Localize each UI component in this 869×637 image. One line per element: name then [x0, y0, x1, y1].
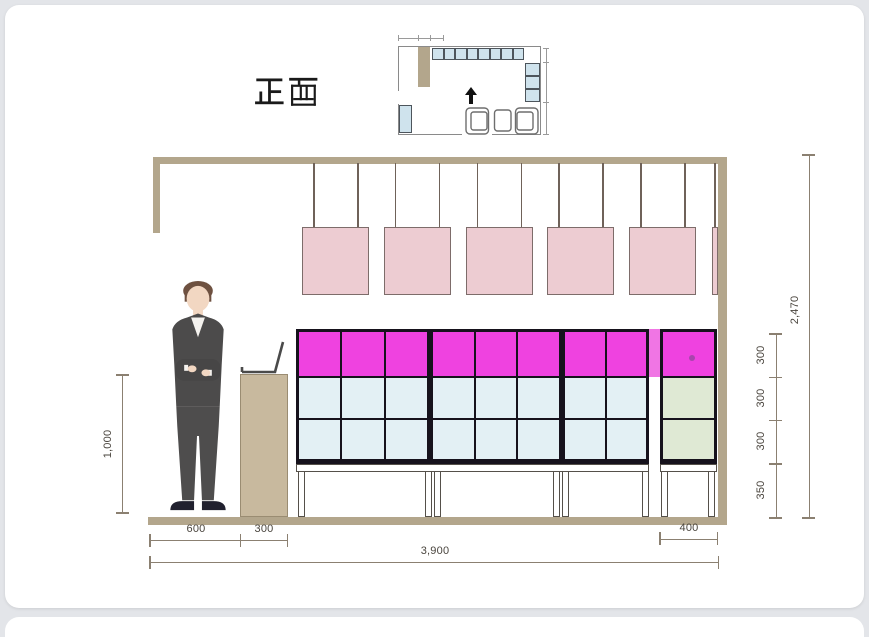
- shelf-cell-blue: [475, 377, 518, 419]
- plan-shelf-module: [525, 89, 540, 102]
- pendant-light: [466, 227, 533, 295]
- dim-tick: [769, 517, 782, 518]
- dim-tick: [717, 532, 718, 545]
- dim-label-podium-height: 1,000: [102, 430, 114, 459]
- plan-shelf-module: [501, 48, 513, 60]
- plan-shelf-module: [525, 76, 540, 89]
- shelf-cell-magenta: [475, 331, 518, 377]
- dim-line-podium-height: [122, 375, 123, 513]
- plan-dim-tick: [430, 35, 431, 41]
- plan-shelf-module: [490, 48, 502, 60]
- shelf-cell-blue: [606, 419, 648, 461]
- shelf-cell-magenta: [662, 331, 715, 377]
- plan-dim-tick: [543, 48, 549, 49]
- pendant-wire: [684, 163, 686, 227]
- shelf-cell-magenta: [432, 331, 475, 377]
- shelf-cell-blue: [517, 419, 560, 461]
- shelf-section-main: [430, 329, 562, 464]
- shelf-cell-blue: [475, 419, 518, 461]
- dim-line-shelf-rows: [776, 334, 777, 518]
- plan-wall-right: [540, 46, 541, 135]
- dim-label-600: 600: [187, 523, 206, 535]
- shelf-cell-blue: [341, 419, 384, 461]
- pendant-wire: [521, 163, 523, 227]
- person-hand: [188, 365, 197, 372]
- pendant-wire: [640, 163, 642, 227]
- dim-tick: [718, 556, 719, 569]
- dim-line-400: [660, 539, 718, 540]
- dim-label-row-bottom: 300: [755, 432, 767, 451]
- left-wall-stub: [153, 157, 160, 233]
- dim-tick: [769, 377, 782, 378]
- dim-label-row-mid: 300: [755, 389, 767, 408]
- shelf-cell-magenta: [298, 331, 341, 377]
- shelf-leg: [642, 471, 649, 517]
- pendant-wire: [357, 163, 359, 227]
- dim-tick: [802, 154, 815, 155]
- plan-shelf-module: [513, 48, 525, 60]
- plan-shelf-module: [455, 48, 467, 60]
- plan-dim-tick: [443, 35, 444, 41]
- right-wall: [718, 157, 728, 517]
- shelf-cell-blue: [385, 377, 428, 419]
- pendant-wire: [558, 163, 560, 227]
- elevation-drawing-page: 正面: [0, 0, 869, 630]
- dim-tick: [769, 420, 782, 421]
- dim-line-3900: [150, 562, 719, 563]
- dim-tick: [116, 512, 129, 513]
- dim-tick: [240, 534, 241, 547]
- person-trousers: [176, 406, 219, 500]
- shelf-cell-blue: [341, 377, 384, 419]
- shelf-cell-magenta: [385, 331, 428, 377]
- person-shoe: [170, 501, 194, 510]
- shelf-cell-blue: [298, 419, 341, 461]
- plan-dim-tick: [398, 35, 399, 41]
- next-page-card: [5, 617, 864, 637]
- pendant-wire: [395, 163, 397, 227]
- plan-wall-bottom-left: [398, 134, 462, 135]
- dim-line-ceiling-height: [809, 155, 810, 518]
- dim-tick: [149, 556, 150, 569]
- dim-tick: [659, 532, 660, 545]
- plan-dim-right-line: [546, 48, 547, 134]
- pendant-light: [629, 227, 696, 295]
- dim-line-600-300: [150, 540, 288, 541]
- pendant-light: [384, 227, 451, 295]
- shelf-cell-blue: [432, 377, 475, 419]
- plan-view-arrow-icon: [465, 87, 477, 104]
- shelf-cell-blue: [564, 377, 606, 419]
- plan-wall-left-upper: [398, 46, 399, 91]
- pendant-light: [547, 227, 614, 295]
- plan-shelf-module: [467, 48, 479, 60]
- shelf-leg: [553, 471, 560, 517]
- shelf-top-band-gap: [649, 329, 660, 377]
- dim-tick: [769, 463, 782, 464]
- person-figure: [156, 276, 240, 516]
- shelf-cell-blue: [385, 419, 428, 461]
- plan-dim-tick: [418, 35, 419, 41]
- pendant-wire: [714, 163, 716, 227]
- shelf-leg: [434, 471, 441, 517]
- page-title-glyphs: [254, 76, 320, 107]
- shelf-rail-main: [296, 464, 649, 472]
- dim-tick: [116, 374, 129, 375]
- laptop: [238, 337, 288, 377]
- plan-shelf-module: [525, 63, 540, 76]
- plan-dim-tick: [543, 134, 549, 135]
- pendant-light: [302, 227, 369, 295]
- floor-strip: [148, 517, 727, 525]
- plan-podium: [399, 105, 412, 134]
- dim-tick: [769, 333, 782, 334]
- pendant-wire: [439, 163, 441, 227]
- dim-label-base: 350: [755, 481, 767, 500]
- shelf-leg: [661, 471, 668, 517]
- dim-label-ceiling-height: 2,470: [789, 296, 801, 325]
- knob-dot: [689, 355, 695, 361]
- shelf-cell-green: [662, 377, 715, 419]
- shelf-cell-blue: [564, 419, 606, 461]
- shelf-cell-magenta: [341, 331, 384, 377]
- plan-table: [495, 110, 512, 131]
- dim-tick: [149, 534, 150, 547]
- shelf-cell-blue: [298, 377, 341, 419]
- plan-shelf-module: [444, 48, 456, 60]
- shelf-leg: [425, 471, 432, 517]
- person-shoe: [202, 501, 226, 510]
- plan-dim-tick: [543, 62, 549, 63]
- dim-label-300: 300: [255, 523, 274, 535]
- shelf-leg: [708, 471, 715, 517]
- pendant-wire: [313, 163, 315, 227]
- podium: [240, 374, 288, 517]
- shelf-cell-blue: [517, 377, 560, 419]
- dim-label-row-top: 300: [755, 346, 767, 365]
- person-crossed-arms: [175, 359, 220, 381]
- shelf-cell-magenta: [517, 331, 560, 377]
- pendant-wire: [602, 163, 604, 227]
- plan-dim-top-line: [398, 38, 443, 39]
- shelf-section-main: [296, 329, 430, 464]
- plan-top-shelf-row: [432, 48, 524, 60]
- plan-tall-cabinet: [418, 47, 430, 87]
- shelf-leg: [562, 471, 569, 517]
- page-title: 正面: [254, 76, 320, 112]
- dim-tick: [802, 517, 815, 518]
- pendant-wire: [477, 163, 479, 227]
- shelf-cell-magenta: [564, 331, 606, 377]
- shelf-section-main: [562, 329, 649, 464]
- shelf-cell-blue: [432, 419, 475, 461]
- shelf-leg: [298, 471, 305, 517]
- pendant-light-edge: [712, 227, 718, 295]
- shelf-cell-green: [662, 419, 715, 461]
- plan-shelf-module: [478, 48, 490, 60]
- dim-label-400: 400: [680, 522, 699, 534]
- dim-tick: [287, 534, 288, 547]
- shelf-cell-blue: [606, 377, 648, 419]
- floor-plan-inset: [398, 46, 541, 135]
- plan-seating-group: [465, 107, 539, 135]
- plan-dim-tick: [543, 102, 549, 103]
- shelf-unit-right: [660, 329, 717, 464]
- plan-shelf-module: [432, 48, 444, 60]
- dim-label-3900: 3,900: [421, 545, 450, 557]
- plan-side-shelf-stack: [525, 63, 540, 102]
- person-hand: [201, 369, 210, 376]
- shelf-cell-magenta: [606, 331, 648, 377]
